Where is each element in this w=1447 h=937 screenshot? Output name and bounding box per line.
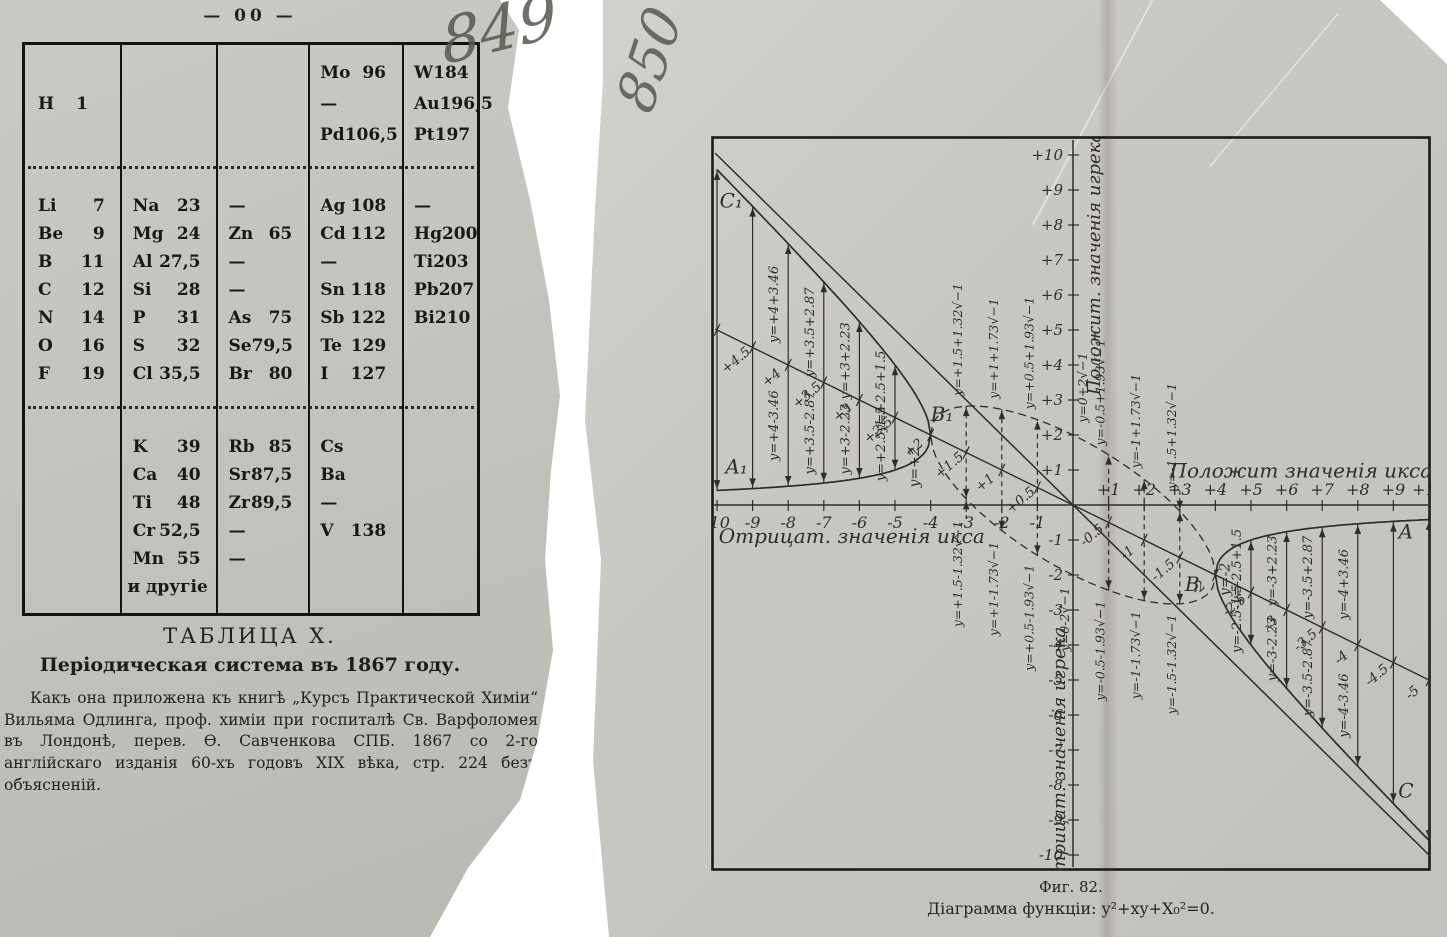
element-cell: и другіе: [120, 573, 216, 601]
atomic-weight: 24: [177, 224, 201, 244]
left-page: — 00 — Mo96W184H1—Au196,5Pd106,5Pt197Li7…: [0, 0, 575, 937]
table-row: F19Cl35,5Br80I127: [25, 360, 477, 388]
arrowhead: [1319, 529, 1326, 538]
element-cell: Li7: [25, 192, 120, 220]
dotted-separator: [28, 406, 474, 409]
element-cell: [25, 461, 120, 489]
atomic-weight: 79,5: [252, 336, 293, 356]
arrowhead: [1283, 533, 1290, 542]
element-cell: Mn55: [120, 545, 216, 573]
complex-root-label: y=-0.5+1.93√−1: [1093, 339, 1108, 446]
element-symbol: Hg: [414, 224, 442, 244]
atomic-weight: 16: [81, 336, 105, 356]
element-cell: P31: [120, 304, 216, 332]
element-cell: [401, 489, 477, 517]
atomic-weight: 75: [269, 308, 293, 328]
table-row: Cr52,5—V138: [25, 517, 477, 545]
complex-root-label: y=+1.5+1.32√−1: [950, 283, 965, 397]
element-symbol: —: [229, 521, 246, 541]
point-letter: C: [1398, 778, 1413, 802]
element-symbol: Br: [229, 364, 252, 384]
x-tick-label: +8: [1346, 480, 1370, 499]
real-root-label: y=-3+2.23: [1266, 535, 1281, 607]
complex-root-label: y=+0.5+1.93√−1: [1021, 297, 1036, 411]
arrowhead: [785, 476, 792, 485]
complex-root-label: y=0-2√−1: [1057, 587, 1072, 652]
element-symbol: Ca: [133, 465, 158, 485]
element-symbol: Al: [133, 252, 153, 272]
element-cell: N14: [25, 304, 120, 332]
table-row: B11Al27,5——Ti203: [25, 248, 477, 276]
atomic-weight: 118: [351, 280, 387, 300]
complex-root-label: y=-1+1.73√−1: [1128, 374, 1143, 469]
element-cell: Pb207: [401, 276, 477, 304]
atomic-weight: 65: [269, 224, 293, 244]
table-row: O16S32Se79,5Te129: [25, 332, 477, 360]
element-cell: [307, 545, 401, 573]
point-letter: A₁: [723, 455, 747, 479]
atomic-weight: 1: [76, 94, 88, 114]
element-symbol: Li: [38, 196, 56, 216]
arrowhead: [1390, 523, 1397, 532]
element-symbol: Mn: [133, 549, 164, 569]
element-cell: [25, 119, 120, 150]
half-line-tick-label: +4.5: [718, 344, 753, 377]
element-symbol: —: [229, 280, 246, 300]
element-cell: [401, 360, 477, 388]
element-cell: [401, 573, 477, 601]
x-tick-label: +6: [1275, 480, 1299, 499]
element-symbol: Na: [133, 196, 160, 216]
table-row: Ti48Zr89,5—: [25, 489, 477, 517]
y-negative-caption: Отрицат. значенія игрека: [1049, 627, 1070, 871]
atomic-weight: 197: [435, 125, 471, 145]
element-cell: Ti48: [120, 489, 216, 517]
table-row: K39Rb85Cs: [25, 433, 477, 461]
figure-diagram: -10-9-8-7-6-5-4-3-2-1+1+2+3+4+5+6+7+8+9+…: [711, 136, 1431, 871]
half-line-tick-label: -5: [1402, 683, 1422, 704]
element-cell: —: [216, 545, 308, 573]
complex-root-label: y=-1.5+1.32√−1: [1164, 383, 1179, 490]
element-symbol: Zn: [229, 224, 254, 244]
element-cell: —: [307, 88, 401, 119]
real-root-label: y=-3-2.23: [1266, 617, 1281, 682]
element-symbol: Mo: [320, 63, 350, 83]
atomic-weight: 52,5: [159, 521, 200, 541]
element-symbol: F: [38, 364, 50, 384]
atomic-weight: 196,5: [440, 94, 493, 114]
point-letter: B₁: [930, 402, 954, 426]
point-letter: C₁: [720, 189, 743, 213]
element-cell: Pd106,5: [307, 119, 401, 150]
table-row: Ca40Sr87,5Ba: [25, 461, 477, 489]
element-cell: O16: [25, 332, 120, 360]
element-symbol: Pt: [414, 125, 435, 145]
element-symbol: и другіе: [128, 577, 208, 597]
element-cell: Cs: [307, 433, 401, 461]
element-cell: B11: [25, 248, 120, 276]
arrowhead: [999, 411, 1006, 420]
atomic-weight: 11: [81, 252, 105, 272]
real-root-label: y=+3.5+2.87: [803, 287, 818, 378]
atomic-weight: 19: [81, 364, 105, 384]
arrowhead: [714, 480, 721, 489]
element-symbol: Au: [414, 94, 440, 114]
element-cell: V138: [307, 517, 401, 545]
real-root-label: y=-3.5+2.87: [1301, 535, 1316, 620]
element-cell: —: [307, 489, 401, 517]
table-row: Li7Na23—Ag108—: [25, 192, 477, 220]
half-line-tick-label: -4: [1331, 648, 1351, 669]
element-symbol: Ag: [320, 196, 345, 216]
element-symbol: —: [320, 493, 337, 513]
element-symbol: —: [229, 549, 246, 569]
element-symbol: Bi: [414, 308, 435, 328]
complex-root-label: y=+1-1.73√−1: [986, 542, 1001, 637]
element-symbol: —: [229, 196, 246, 216]
element-cell: Rb85: [216, 433, 308, 461]
element-symbol: B: [38, 252, 52, 272]
atomic-weight: 210: [435, 308, 471, 328]
y-tick-label: +7: [1041, 251, 1064, 269]
real-root-label: y=+3+2.23: [838, 322, 853, 400]
half-line-tick-label: +4: [759, 365, 785, 390]
table-row: и другіе: [25, 573, 477, 601]
element-symbol: Ti: [133, 493, 152, 513]
atomic-weight: 129: [351, 336, 387, 356]
atomic-weight: 112: [351, 224, 387, 244]
element-cell: [216, 573, 308, 601]
element-symbol: Rb: [229, 437, 255, 457]
figure-caption-formula: Діаграмма функціи: y²+xy+X₀²=0.: [811, 899, 1331, 918]
real-root-label: y=-3.5-2.87: [1301, 639, 1316, 717]
complex-root-label: y=+1.5-1.32√−1: [950, 521, 965, 628]
element-cell: —: [307, 248, 401, 276]
element-cell: Ba: [307, 461, 401, 489]
atomic-weight: 87,5: [251, 465, 292, 485]
y-tick-label: +5: [1041, 321, 1063, 339]
real-root-label: y=-4-3.46: [1337, 673, 1352, 738]
table-row: Be9Mg24Zn65Cd112Hg200: [25, 220, 477, 248]
atomic-weight: 108: [351, 196, 387, 216]
element-cell: [25, 57, 120, 88]
atomic-weight: 80: [269, 364, 293, 384]
y-tick-label: +4: [1041, 356, 1063, 374]
element-cell: Zr89,5: [216, 489, 308, 517]
arrowhead: [1034, 421, 1041, 430]
element-cell: Ca40: [120, 461, 216, 489]
element-cell: Sr87,5: [216, 461, 308, 489]
element-cell: —: [216, 248, 308, 276]
element-cell: Mo96: [307, 57, 401, 88]
atomic-weight: 39: [177, 437, 201, 457]
element-cell: Pt197: [401, 119, 477, 150]
complex-root-label: y=-0.5-1.93√−1: [1093, 601, 1108, 702]
element-cell: [215, 119, 307, 150]
element-symbol: Sr: [229, 465, 250, 485]
element-symbol: H: [38, 94, 54, 114]
element-cell: K39: [120, 433, 216, 461]
element-cell: [25, 517, 120, 545]
atomic-weight: 14: [81, 308, 105, 328]
atomic-weight: 106,5: [345, 125, 398, 145]
real-root-label: y=+3.5-2.87: [803, 390, 818, 475]
element-cell: —: [401, 192, 477, 220]
atomic-weight: 200: [442, 224, 478, 244]
half-line-tick-label: +1.5: [932, 449, 967, 482]
arrowhead: [892, 460, 899, 469]
table-row: Mo96W184: [25, 57, 477, 88]
element-cell: Be9: [25, 220, 120, 248]
dotted-separator: [28, 166, 474, 169]
element-cell: H1: [25, 88, 120, 119]
x-positive-caption: Положит значенія икса: [1169, 459, 1431, 483]
element-cell: Mg24: [120, 220, 216, 248]
element-cell: As75: [216, 304, 308, 332]
element-cell: [25, 489, 120, 517]
complex-root-label: y=-1.5-1.32√−1: [1164, 614, 1179, 715]
element-cell: Cl35,5: [120, 360, 216, 388]
element-symbol: Cr: [133, 521, 156, 541]
element-symbol: Sn: [320, 280, 345, 300]
element-cell: [401, 332, 477, 360]
element-symbol: Cs: [320, 437, 343, 457]
atomic-weight: 32: [177, 336, 201, 356]
atomic-weight: 23: [177, 196, 201, 216]
table-row: C12Si28—Sn118Pb207: [25, 276, 477, 304]
table-row: N14P31As75Sb122Bi210: [25, 304, 477, 332]
arrowhead: [1105, 456, 1112, 465]
element-symbol: N: [38, 308, 54, 328]
real-root-label: y=+2.5-1.5: [874, 406, 889, 482]
y-tick-label: +8: [1041, 216, 1063, 234]
atomic-weight: 89,5: [251, 493, 292, 513]
element-cell: Bi210: [401, 304, 477, 332]
scanned-book-spread: — 00 — Mo96W184H1—Au196,5Pd106,5Pt197Li7…: [0, 0, 1447, 937]
element-symbol: Pb: [414, 280, 439, 300]
complex-root-label: y=0+2√−1: [1075, 352, 1090, 423]
element-symbol: O: [38, 336, 53, 356]
element-symbol: Cl: [133, 364, 153, 384]
half-line-tick-label: -0.5: [1077, 521, 1107, 550]
arrowhead: [1177, 513, 1184, 522]
element-cell: Cd112: [307, 220, 401, 248]
figure-caption-number: Фиг. 82.: [861, 878, 1281, 896]
element-symbol: C: [38, 280, 52, 300]
table-row: Mn55—: [25, 545, 477, 573]
element-symbol: Sb: [320, 308, 344, 328]
element-symbol: W: [414, 63, 433, 83]
element-symbol: Be: [38, 224, 63, 244]
atomic-weight: 35,5: [159, 364, 200, 384]
y-tick-label: -1: [1048, 531, 1063, 549]
y-tick-label: +9: [1041, 181, 1064, 199]
half-line-tick-label: +1: [972, 470, 998, 495]
atomic-weight: 40: [177, 465, 201, 485]
atomic-weight: 28: [177, 280, 201, 300]
real-root-label: y=+3-2.23: [838, 404, 853, 476]
element-cell: Au196,5: [401, 88, 477, 119]
atomic-weight: 203: [433, 252, 469, 272]
arrowhead: [749, 478, 756, 487]
y-tick-label: +3: [1041, 391, 1063, 409]
point-letter: A: [1397, 519, 1413, 543]
element-symbol: Ti: [414, 252, 433, 272]
element-symbol: —: [320, 94, 337, 114]
element-cell: Al27,5: [120, 248, 216, 276]
element-symbol: Zr: [229, 493, 250, 513]
table-row: Pd106,5Pt197: [25, 119, 477, 150]
table-row: H1—Au196,5: [25, 88, 477, 119]
element-symbol: As: [229, 308, 252, 328]
element-cell: Se79,5: [215, 332, 307, 360]
element-cell: C12: [25, 276, 120, 304]
arrowhead: [1141, 591, 1148, 600]
element-symbol: Si: [133, 280, 152, 300]
half-line-tick-label: -1.5: [1148, 556, 1178, 585]
arrowhead: [1177, 594, 1184, 603]
element-cell: Na23: [120, 192, 216, 220]
element-cell: Zn65: [216, 220, 308, 248]
element-cell: Br80: [216, 360, 308, 388]
element-symbol: —: [414, 196, 431, 216]
element-cell: [120, 88, 216, 119]
real-root-label: y=-4+3.46: [1337, 549, 1352, 621]
atomic-weight: 85: [269, 437, 293, 457]
arrowhead: [856, 468, 863, 477]
periodic-table: Mo96W184H1—Au196,5Pd106,5Pt197Li7Na23—Ag…: [22, 42, 480, 616]
element-cell: [216, 57, 308, 88]
element-cell: [401, 461, 477, 489]
element-symbol: Mg: [133, 224, 164, 244]
x-tick-label: +7: [1310, 480, 1334, 499]
x-tick-label: +5: [1239, 480, 1263, 499]
element-symbol: Cd: [320, 224, 345, 244]
table-subtitle: Періодическая система въ 1867 году.: [0, 654, 500, 676]
element-cell: —: [216, 192, 308, 220]
element-symbol: Ba: [320, 465, 345, 485]
element-cell: [216, 88, 308, 119]
element-cell: Sn118: [307, 276, 401, 304]
arrowhead: [1034, 545, 1041, 554]
real-root-label: y=+4+3.46: [767, 266, 782, 344]
y-tick-label: -2: [1048, 566, 1063, 584]
element-symbol: —: [229, 252, 246, 272]
atomic-weight: 7: [93, 196, 105, 216]
y-tick-label: +6: [1041, 286, 1064, 304]
arrowhead: [821, 473, 828, 482]
element-cell: [401, 433, 477, 461]
element-cell: Si28: [120, 276, 216, 304]
element-symbol: —: [320, 252, 337, 272]
element-cell: —: [216, 517, 308, 545]
atomic-weight: 27,5: [159, 252, 200, 272]
complex-root-label: y=+1+1.73√−1: [986, 298, 1001, 400]
element-cell: S32: [120, 332, 216, 360]
atomic-weight: 55: [177, 549, 201, 569]
element-cell: Hg200: [401, 220, 477, 248]
complex-root-label: y=-1-1.73√−1: [1128, 611, 1143, 700]
atomic-weight: 138: [351, 521, 387, 541]
element-cell: [401, 545, 477, 573]
element-symbol: Pd: [320, 125, 345, 145]
element-symbol: P: [133, 308, 146, 328]
table-description: Какъ она приложена къ книгѣ „Курсъ Практ…: [4, 688, 538, 796]
atomic-weight: 31: [177, 308, 201, 328]
element-cell: Sb122: [307, 304, 401, 332]
arrowhead: [1355, 526, 1362, 535]
element-cell: [120, 57, 216, 88]
element-cell: Cr52,5: [120, 517, 216, 545]
atomic-weight: 96: [362, 63, 386, 83]
element-cell: —: [216, 276, 308, 304]
element-cell: [25, 545, 120, 573]
element-symbol: S: [133, 336, 145, 356]
element-cell: Te129: [307, 332, 401, 360]
figure-box: -10-9-8-7-6-5-4-3-2-1+1+2+3+4+5+6+7+8+9+…: [711, 136, 1431, 871]
element-cell: Ti203: [401, 248, 477, 276]
element-cell: [401, 517, 477, 545]
element-cell: F19: [25, 360, 120, 388]
x-tick-label: +9: [1382, 480, 1406, 499]
arrowhead: [1105, 580, 1112, 589]
element-cell: [307, 573, 401, 601]
element-symbol: Se: [228, 336, 251, 356]
element-symbol: Te: [320, 336, 342, 356]
element-symbol: I: [320, 364, 328, 384]
atomic-weight: 12: [81, 280, 105, 300]
element-symbol: V: [320, 521, 333, 541]
page-number: — 00 —: [150, 6, 350, 26]
atomic-weight: 9: [93, 224, 105, 244]
element-symbol: K: [133, 437, 148, 457]
complex-root-label: y=+0.5-1.93√−1: [1021, 565, 1036, 672]
element-cell: I127: [307, 360, 401, 388]
half-line-tick-label: -1: [1117, 543, 1137, 564]
x-negative-caption: Отрицат. значенія икса: [719, 524, 985, 548]
x-tick-label: +10: [1412, 480, 1431, 499]
table-title: ТАБЛИЦА X.: [0, 624, 500, 648]
atomic-weight: 122: [351, 308, 387, 328]
real-root-label: y=+4-3.46: [767, 390, 782, 462]
element-cell: [120, 119, 216, 150]
element-cell: Ag108: [307, 192, 401, 220]
vertex-label: y=+2: [907, 447, 923, 488]
x-tick-label: +4: [1204, 480, 1228, 499]
arrowhead: [1248, 542, 1255, 551]
atomic-weight: 207: [439, 280, 475, 300]
arrowhead: [963, 408, 970, 417]
half-line-tick-label: -4.5: [1362, 661, 1392, 690]
atomic-weight: 48: [177, 493, 201, 513]
point-letter: B: [1184, 572, 1200, 596]
element-cell: [25, 573, 120, 601]
atomic-weight: 127: [351, 364, 387, 384]
y-tick-label: +10: [1031, 146, 1063, 164]
element-cell: [25, 433, 120, 461]
vertex-label: y=-2: [1218, 563, 1234, 597]
